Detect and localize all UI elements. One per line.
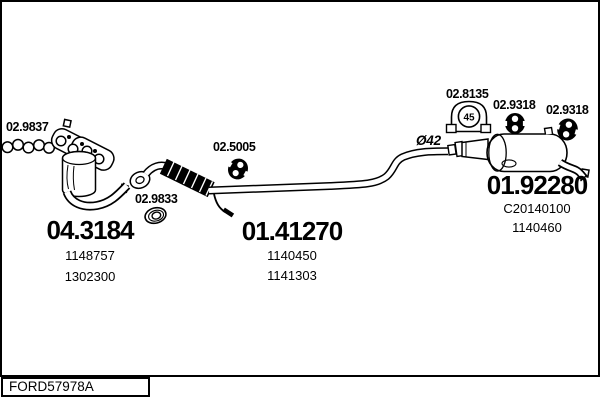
manifold-gasket-icon bbox=[2, 140, 54, 154]
clamp-icon: 45 bbox=[447, 102, 491, 133]
part-ref: 1302300 bbox=[17, 266, 163, 287]
part-ref: 1140450 bbox=[219, 246, 365, 266]
label-clamp: 02.8135 bbox=[446, 88, 488, 101]
part-group-rear-silencer: 01.92280 C20140100 1140460 bbox=[472, 171, 600, 237]
part-code-rear-silencer: 01.92280 bbox=[472, 171, 600, 200]
label-ring-gasket: 02.9833 bbox=[135, 193, 177, 206]
part-ref: 1148757 bbox=[17, 245, 163, 266]
lambda-sensor-wire bbox=[214, 194, 225, 212]
clamp-size-label: 45 bbox=[463, 113, 475, 124]
part-group-catalytic-converter: 04.3184 1148757 1302300 bbox=[17, 216, 163, 287]
label-hanger-front: 02.9318 bbox=[493, 99, 535, 112]
center-pipe-drawing bbox=[146, 151, 448, 217]
part-ref: 1141303 bbox=[219, 266, 365, 286]
catalog-code: FORD57978A bbox=[9, 379, 94, 394]
label-hanger-rear: 02.9318 bbox=[546, 104, 588, 117]
part-code-center-pipe: 01.41270 bbox=[219, 217, 365, 246]
label-pipe-diameter: Ø42 bbox=[416, 134, 441, 147]
part-ref: C20140100 bbox=[472, 200, 600, 219]
label-center-hanger: 02.5005 bbox=[213, 141, 255, 154]
catalog-code-box: FORD57978A bbox=[1, 377, 150, 397]
part-code-catalytic-converter: 04.3184 bbox=[17, 216, 163, 245]
label-manifold-gasket: 02.9837 bbox=[6, 121, 48, 134]
part-ref: 1140460 bbox=[472, 219, 600, 238]
hanger-front-icon bbox=[504, 113, 525, 134]
mount-square-icon bbox=[63, 119, 71, 127]
part-group-center-pipe: 01.41270 1140450 1141303 bbox=[219, 217, 365, 286]
center-hanger-icon bbox=[224, 155, 253, 184]
